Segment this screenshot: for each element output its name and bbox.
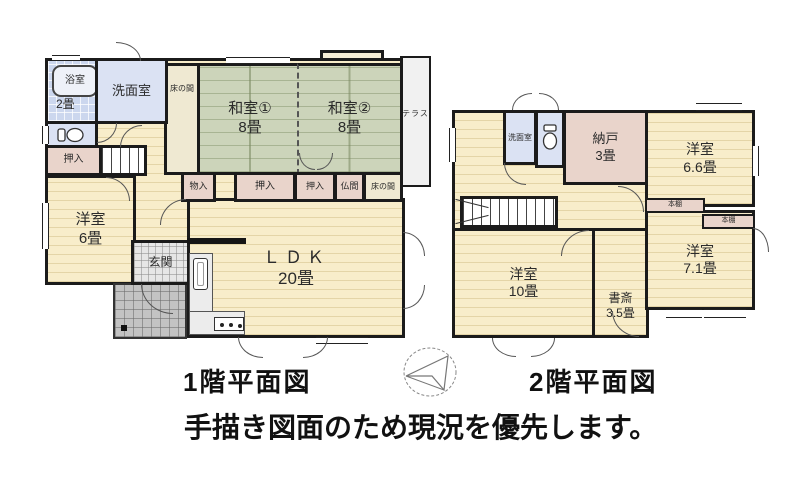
stairs-1f (99, 145, 147, 176)
window (42, 126, 49, 144)
door-arc (512, 93, 532, 110)
room-size: 6.6畳 (683, 159, 716, 177)
floor2-title: 2階平面図 (529, 362, 657, 399)
porch-mark (121, 325, 127, 331)
room-label: 洗面室 (112, 83, 151, 99)
door-arc (403, 232, 425, 256)
room-yoshitsu66-2f: 洋室 6.6畳 (645, 110, 755, 207)
room-tokonoma-lower-1f: 床の間 (363, 172, 403, 202)
room-label: 洋室 (510, 266, 538, 284)
room-washroom-2f: 洗面室 (503, 110, 537, 165)
room-label: ＬＤＫ (263, 247, 329, 268)
room-label: 床の間 (371, 182, 395, 192)
room-label: 書斎 (608, 291, 632, 306)
door-arc (303, 337, 328, 358)
window (449, 128, 456, 162)
kitchen-sink-icon (193, 258, 208, 290)
room-label: 仏間 (340, 181, 358, 192)
floor1-title: 1階平面図 (183, 362, 311, 399)
door-arc (116, 42, 141, 61)
wall-stub-ldk (187, 238, 246, 244)
bathtub-icon: 浴室 (52, 65, 98, 97)
room-label: 押入 (64, 154, 84, 167)
room-genkan-1f: 玄関 (131, 240, 190, 285)
toilet-icon (542, 124, 558, 154)
window (226, 57, 290, 64)
room-label: 和室① (228, 100, 271, 119)
door-arc (238, 337, 263, 358)
room-terrace-label: テラス (402, 108, 429, 119)
room-terrace-1f (400, 56, 431, 187)
room-label: 本棚 (668, 201, 682, 210)
room-label: 本棚 (722, 217, 736, 226)
floorplan-canvas: ＬＤＫ 20畳 床の間 和室① 8畳 和室② 8畳 浴室 2畳 洗面室 押入 物… (0, 0, 800, 487)
room-label: 洋室 (686, 243, 714, 261)
room-washroom-1f: 洗面室 (95, 58, 168, 124)
room-washitsu1-1f: 和室① 8畳 (197, 63, 300, 175)
room-toilet-2f (535, 110, 565, 168)
room-size: 20畳 (278, 268, 314, 289)
room-tokonoma-upper-1f: 床の間 (164, 63, 200, 175)
room-size: 10畳 (509, 283, 539, 301)
room-size: 7.1畳 (683, 260, 716, 278)
room-size: 6畳 (79, 230, 102, 249)
room-label: 和室② (328, 100, 371, 119)
window (42, 203, 49, 249)
room-nando-2f: 納戸 3畳 (563, 110, 648, 185)
room-monoire-1f: 物入 (181, 172, 216, 202)
door-arc (539, 93, 559, 110)
disclaimer-note: 手描き図面のため現況を優先します。 (184, 406, 657, 446)
toilet-icon (57, 126, 87, 144)
door-arc (403, 285, 425, 309)
compass-icon (402, 346, 460, 398)
bookshelf-south-2f: 本棚 (702, 214, 755, 229)
room-oshiire-center-1f: 押入 (234, 172, 296, 202)
room-label: 玄関 (148, 255, 172, 270)
room-size: 2畳 (56, 97, 75, 112)
room-label: 洋室 (75, 211, 105, 230)
room-toilet-1f (45, 121, 98, 148)
window (666, 309, 702, 318)
window (704, 309, 746, 318)
room-size: 8畳 (338, 119, 361, 138)
window (696, 103, 742, 111)
room-bathroom-1f: 浴室 2畳 (45, 58, 98, 124)
room-butsuma-1f: 仏間 (334, 172, 365, 202)
door-arc (531, 338, 555, 357)
room-label: 納戸 (592, 131, 618, 147)
room-label: 物入 (189, 181, 207, 192)
window (52, 55, 80, 61)
room-oshiire-west-1f: 押入 (45, 145, 102, 176)
bookshelf-north-2f: 本棚 (645, 198, 705, 213)
room-label: 洋室 (686, 141, 714, 159)
room-label: 洗面室 (508, 133, 532, 143)
room-label: 押入 (306, 181, 324, 192)
door-arc (753, 228, 769, 252)
room-label: 床の間 (170, 84, 194, 94)
room-oshiire-east-1f: 押入 (294, 172, 336, 202)
door-arc (492, 338, 516, 357)
stairs-2f (460, 196, 558, 228)
room-label: 浴室 (65, 75, 85, 88)
stove-icon (214, 317, 244, 331)
window (752, 146, 759, 176)
room-label: 押入 (255, 181, 275, 194)
room-size: 8畳 (238, 119, 261, 138)
room-size: 3畳 (595, 148, 615, 164)
